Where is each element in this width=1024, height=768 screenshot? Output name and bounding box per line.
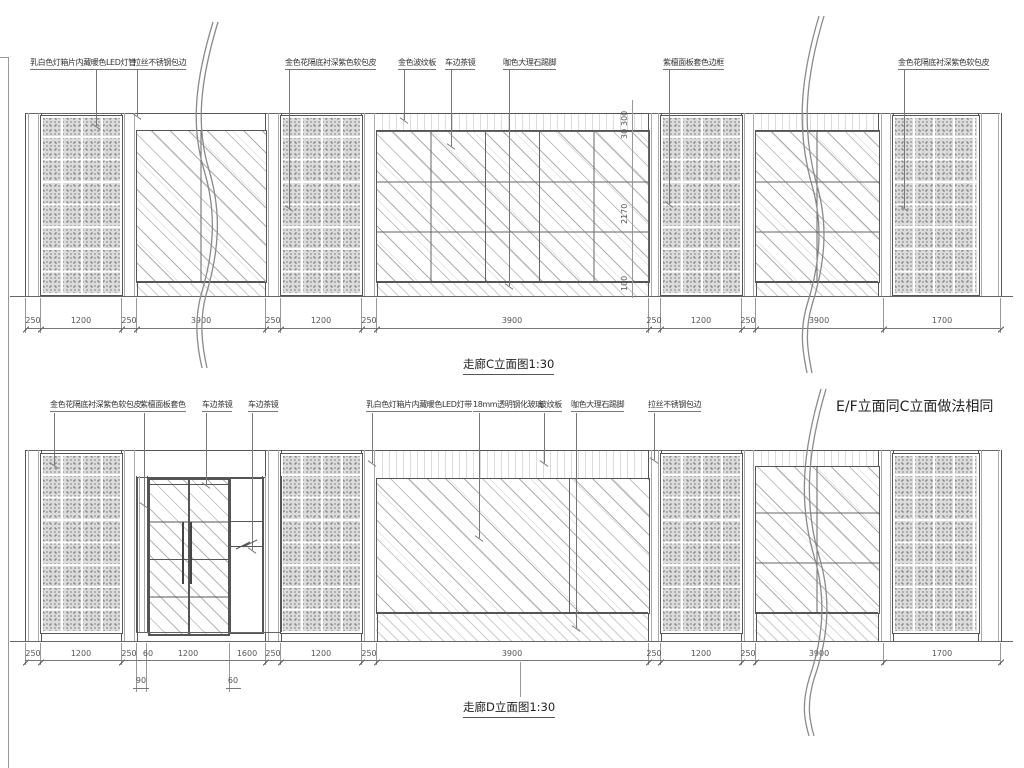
dim-label: 3900: [179, 316, 223, 325]
leader-line: [404, 70, 405, 120]
dim-label: 250: [251, 649, 295, 658]
dim-label: 3900: [797, 649, 841, 658]
door-leaf-right: [188, 478, 230, 636]
dim-label: 3900: [490, 316, 534, 325]
callout-label: 拉丝不锈钢包边: [133, 58, 186, 70]
lattice-panel: [280, 115, 363, 296]
dim-label: 1200: [59, 649, 103, 658]
callout-label: 车边茶镜: [202, 400, 232, 412]
dim-label: 1200: [679, 316, 723, 325]
vdim-label: 300: [620, 104, 629, 126]
vdim-label: 2170: [620, 194, 629, 224]
dim-label: 1200: [299, 316, 343, 325]
lattice-panel: [892, 453, 980, 634]
pilaster: [978, 113, 1002, 296]
dim-label: 250: [347, 649, 391, 658]
callout-label: 乳白色灯箱片内藏暖色LED灯管: [30, 58, 136, 70]
callout-label: 紫檀面板套色边框: [663, 58, 724, 70]
dim-label: 1200: [166, 649, 210, 658]
dim-label: 250: [726, 316, 770, 325]
dim-label: 1700: [920, 316, 964, 325]
floor-line: [10, 296, 1013, 297]
vdim-label: 100: [620, 271, 629, 291]
lattice-panel: [40, 115, 123, 296]
dim-label: 1200: [59, 316, 103, 325]
callout-label: 车边茶镜: [445, 58, 475, 70]
sub-dim-label: 90: [119, 676, 163, 685]
callout-label: 金色波纹板: [398, 58, 436, 70]
leader-line: [544, 413, 545, 463]
dim-label: 250: [726, 649, 770, 658]
leader-line: [206, 413, 207, 485]
leader-line: [372, 413, 373, 463]
dim-label: 3900: [797, 316, 841, 325]
dim-label: 250: [632, 649, 676, 658]
dimension-line: [25, 328, 1000, 329]
leader-line: [451, 70, 452, 146]
mirror-panel: [136, 130, 267, 283]
lattice-panel: [280, 453, 363, 634]
tempered-glass-panel: [376, 478, 650, 614]
leader-line: [576, 413, 577, 628]
callout-label: 18mm透明钢化玻璃: [473, 400, 543, 412]
mirror-grid-panel: [755, 466, 880, 614]
dim-label: 3900: [490, 649, 534, 658]
band-lightbox: [376, 450, 648, 480]
vertical-dim-line: [632, 100, 633, 298]
lattice-panel: [660, 453, 743, 634]
drawing-sheet: 乳白色灯箱片内藏暖色LED灯管 拉丝不锈钢包边 金色花隔底衬深紫色软包皮 金色波…: [0, 0, 1024, 768]
callout-label: 乳白色灯箱片内藏暖色LED灯带: [366, 400, 472, 412]
dim-label: 250: [107, 316, 151, 325]
pilaster: [978, 450, 1002, 641]
sheet-border-tick: [0, 57, 8, 58]
dim-label: 250: [251, 316, 295, 325]
door-jamb-left: [136, 476, 148, 632]
lattice-panel: [40, 453, 123, 634]
callout-label: 咖色大理石踢脚: [503, 58, 556, 70]
skirting: [755, 281, 878, 297]
callout-label: 金色花隔底衬深紫色软包皮: [50, 400, 141, 412]
mirror-grid-panel: [376, 130, 650, 283]
skirting: [755, 612, 878, 642]
extension-line: [520, 662, 521, 697]
mirror-grid-panel: [755, 130, 880, 283]
extension-line: [1000, 643, 1001, 665]
callout-label: 波纹板: [539, 400, 562, 412]
leader-line: [479, 413, 480, 538]
door-side-panel: [230, 478, 264, 634]
sub-dimension-line: [226, 688, 241, 689]
leader-line: [54, 413, 55, 465]
leader-line: [289, 70, 290, 208]
sub-dimension-line: [133, 688, 149, 689]
dim-label: 1200: [299, 649, 343, 658]
elevation-title: 走廊D立面图1:30: [463, 699, 555, 718]
sheet-border-line: [8, 57, 9, 768]
callout-label: 车边茶镜: [248, 400, 278, 412]
dim-label: 60: [126, 649, 170, 658]
leader-line: [904, 70, 905, 208]
leader-line: [96, 70, 97, 126]
note-ef: E/F立面同C立面做法相同: [836, 396, 993, 416]
leader-line: [144, 413, 145, 505]
extension-line: [883, 643, 884, 665]
dim-label: 250: [11, 649, 55, 658]
callout-label: 咖色大理石踢脚: [571, 400, 624, 412]
sub-dim-label: 60: [211, 676, 255, 685]
door-handle: [182, 522, 184, 584]
leader-line: [654, 413, 655, 460]
dimension-line: [25, 660, 1000, 661]
dim-label: 250: [632, 316, 676, 325]
skirting: [136, 281, 265, 297]
dim-label: 1700: [920, 649, 964, 658]
door-threshold-line: [136, 632, 280, 633]
skirting: [376, 612, 648, 642]
door-transom-lightbox: [136, 450, 265, 478]
dim-label: 250: [11, 316, 55, 325]
dim-label: 1200: [679, 649, 723, 658]
leader-line: [252, 413, 253, 550]
door-handle: [190, 522, 192, 584]
callout-label: 金色花隔底衬深紫色软包皮: [898, 58, 989, 70]
vdim-label: 30: [620, 127, 629, 139]
callout-label: 紫檀面板套色: [140, 400, 186, 412]
dim-label: 250: [347, 316, 391, 325]
extension-line: [1000, 298, 1001, 333]
door-jamb-right: [262, 476, 282, 632]
callout-label: 拉丝不锈钢包边: [648, 400, 701, 412]
lattice-panel: [892, 115, 980, 296]
elevation-title: 走廊C立面图1:30: [463, 356, 554, 375]
leader-line: [509, 70, 510, 286]
leader-line: [137, 70, 138, 116]
leader-line: [669, 70, 670, 204]
floor-line: [10, 641, 1013, 642]
callout-label: 金色花隔底衬深紫色软包皮: [285, 58, 376, 70]
